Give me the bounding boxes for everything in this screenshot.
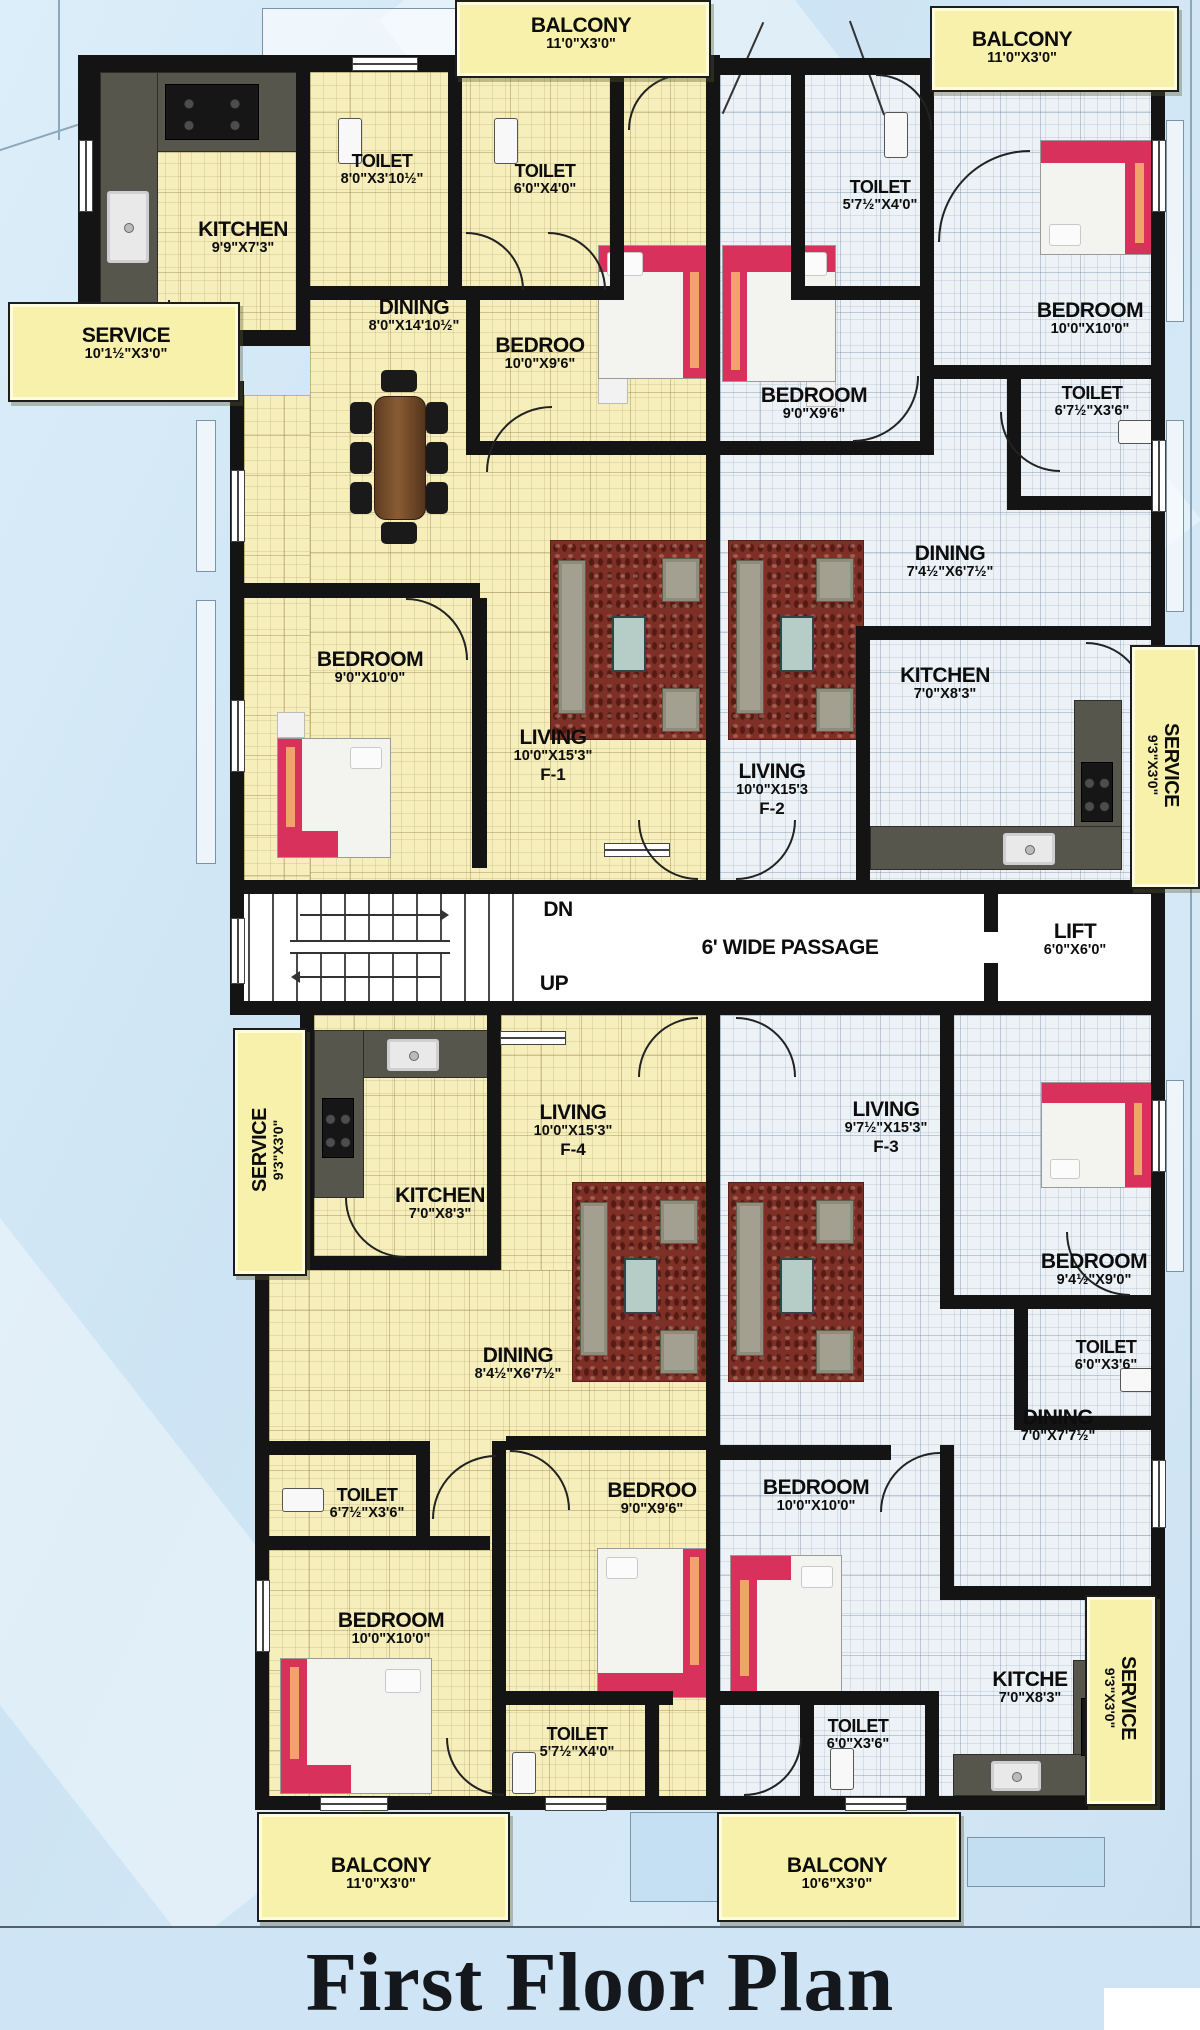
room-name: KITCHE — [930, 1668, 1130, 1691]
room-label-f3-living: LIVING 9'7½"X15'3" F-3 — [786, 1098, 986, 1157]
room-label-f2-living: LIVING 10'0"X15'3 F-2 — [672, 760, 872, 819]
room-dims: 7'4½"X6'7½" — [850, 565, 1050, 581]
room-label-f4-toilet-a: TOILET 6'7½"X3'6" — [267, 1486, 467, 1522]
stair-arrow-head — [291, 971, 300, 983]
room-name: BALCONY — [281, 1854, 481, 1877]
room-label-f3-toilet-a: TOILET 6'0"X3'6" — [1006, 1338, 1200, 1374]
wall — [706, 58, 720, 880]
window — [845, 1797, 907, 1811]
wall — [1007, 496, 1165, 510]
armchair-icon — [816, 558, 854, 602]
window-ledge — [1166, 420, 1184, 612]
room-dims: 5'7½"X4'0" — [780, 198, 980, 214]
armchair-icon — [816, 1330, 854, 1374]
room-dims: 6'7½"X3'6" — [267, 1506, 467, 1522]
room-name: TOILET — [992, 384, 1192, 404]
room-name: TOILET — [758, 1717, 958, 1737]
armchair-icon — [816, 1200, 854, 1244]
wall — [255, 1796, 1165, 1810]
room-dims: 7'0"X8'3" — [340, 1207, 540, 1223]
room-name: LIVING — [672, 760, 872, 783]
page-title: First Floor Plan — [0, 1934, 1200, 2030]
room-label-f3-bedroom-a: BEDROOM 9'4½"X9'0" — [994, 1250, 1194, 1289]
wall — [791, 286, 934, 300]
bed-f3-bedroom-b — [730, 1555, 842, 1692]
room-name: DINING — [314, 296, 514, 319]
room-dims: 6'7½"X3'6" — [992, 404, 1192, 420]
room-label-f1-service: SERVICE 10'1½"X3'0" — [26, 324, 226, 363]
flat-id: F-3 — [786, 1138, 986, 1157]
room-name: BEDROOM — [716, 1476, 916, 1499]
dining-table — [374, 396, 426, 520]
stair-down-label: DN — [528, 898, 588, 921]
kitchen-counter — [870, 826, 1122, 870]
room-name: BEDROOM — [714, 384, 914, 407]
window — [256, 1580, 270, 1652]
wall — [940, 1445, 954, 1600]
room-label-f4-service: SERVICE 9'3"X3'0" — [250, 1108, 286, 1192]
chair-icon — [350, 442, 372, 474]
room-name: BEDROO — [440, 334, 640, 357]
sink-icon — [386, 1038, 440, 1072]
room-label-f1-living: LIVING 10'0"X15'3" F-1 — [453, 726, 653, 785]
window-ledge — [1166, 1080, 1184, 1272]
wall — [706, 1445, 891, 1460]
chair-icon — [381, 522, 417, 544]
room-name: LIVING — [786, 1098, 986, 1121]
room-label-f1-kitchen: KITCHEN 9'9"X7'3" — [143, 218, 343, 257]
window-ledge — [196, 420, 216, 572]
room-name: DINING — [850, 542, 1050, 565]
room-name: BEDROOM — [990, 299, 1190, 322]
room-label-f2-bedroom-a: BEDROOM 9'0"X9'6" — [714, 384, 914, 423]
window-ledge — [1166, 120, 1184, 322]
room-label-f4-bedroom-a: BEDROOM 10'0"X10'0" — [291, 1609, 491, 1648]
window — [320, 1797, 388, 1811]
wall — [230, 395, 244, 880]
window — [352, 57, 418, 71]
room-dims: 9'4½"X9'0" — [994, 1273, 1194, 1289]
room-dims: 10'0"X10'0" — [990, 322, 1190, 338]
armchair-icon — [660, 1200, 698, 1244]
room-name: SERVICE — [1160, 723, 1181, 807]
sofa-icon — [580, 1202, 608, 1356]
wall — [506, 1436, 720, 1450]
coffee-table-icon — [780, 1258, 814, 1314]
wall — [720, 441, 934, 455]
chair-icon — [350, 402, 372, 434]
coffee-table-icon — [624, 1258, 658, 1314]
sofa-icon — [558, 560, 586, 714]
wall — [940, 1295, 1165, 1309]
room-name: BEDROOM — [994, 1250, 1194, 1273]
room-dims: 10'0"X15'3" — [453, 749, 653, 765]
room-name: LIVING — [453, 726, 653, 749]
chair-icon — [426, 402, 448, 434]
patio-outline — [630, 1812, 722, 1902]
room-name: BEDROOM — [270, 648, 470, 671]
room-label-f2-dining: DINING 7'4½"X6'7½" — [850, 542, 1050, 581]
window — [500, 1031, 566, 1045]
room-dims: 7'0"X7'7½" — [958, 1429, 1158, 1445]
wall — [230, 1001, 1165, 1015]
wall — [934, 365, 1165, 379]
room-name: TOILET — [267, 1486, 467, 1506]
wall — [984, 963, 998, 1001]
wall — [230, 880, 1165, 894]
sofa-icon — [736, 1202, 764, 1356]
room-label-f3-kitchen: KITCHE 7'0"X8'3" — [930, 1668, 1130, 1707]
wall — [856, 626, 1165, 640]
toilet-icon — [830, 1748, 854, 1790]
room-dims: 9'3"X3'0" — [1145, 723, 1160, 807]
toilet-icon — [494, 118, 518, 164]
window — [1152, 1100, 1166, 1172]
armchair-icon — [662, 558, 700, 602]
bed-f4-bedroom-a — [280, 1658, 432, 1794]
site-boundary-line — [1190, 0, 1192, 2030]
bed-f3-bedroom-a — [1041, 1082, 1152, 1188]
room-dims: 6'0"X3'6" — [758, 1737, 958, 1753]
room-label-f1-bedroom-a: BEDROO 10'0"X9'6" — [440, 334, 640, 373]
room-name: TOILET — [445, 162, 645, 182]
title-corner-chip — [1104, 1988, 1200, 2030]
room-dims: 8'0"X14'10½" — [314, 319, 514, 335]
room-label-balcony-top-right: BALCONY 11'0"X3'0" — [922, 28, 1122, 67]
room-dims: 10'0"X10'0" — [291, 1632, 491, 1648]
patio-outline — [967, 1837, 1105, 1887]
room-dims: 6'0"X6'0" — [975, 943, 1175, 959]
site-boundary-line — [58, 0, 60, 140]
room-name: SERVICE — [26, 324, 226, 347]
room-label-balcony-bottom-left: BALCONY 11'0"X3'0" — [281, 1854, 481, 1893]
room-dims: 11'0"X3'0" — [481, 37, 681, 53]
room-label-f2-service: SERVICE 9'3"X3'0" — [1145, 723, 1181, 807]
room-name: LIFT — [975, 920, 1175, 943]
room-label-balcony-top-left: BALCONY 11'0"X3'0" — [481, 14, 681, 53]
room-name: KITCHEN — [340, 1184, 540, 1207]
room-dims: 8'4½"X6'7½" — [418, 1367, 618, 1383]
room-label-balcony-bottom-right: BALCONY 10'6"X3'0" — [737, 1854, 937, 1893]
chair-icon — [350, 482, 372, 514]
room-name: TOILET — [1006, 1338, 1200, 1358]
room-label-f3-dining: DINING 7'0"X7'7½" — [958, 1406, 1158, 1445]
room-dims: 9'0"X9'6" — [714, 407, 914, 423]
room-label-f4-toilet-b: TOILET 5'7½"X4'0" — [477, 1725, 677, 1761]
window — [79, 140, 93, 212]
room-label-f2-toilet-a: TOILET 5'7½"X4'0" — [780, 178, 980, 214]
room-dims: 10'1½"X3'0" — [26, 347, 226, 363]
room-label-f2-kitchen: KITCHEN 7'0"X8'3" — [845, 664, 1045, 703]
room-label-f1-dining: DINING 8'0"X14'10½" — [314, 296, 514, 335]
room-label-f4-living: LIVING 10'0"X15'3" F-4 — [473, 1101, 673, 1160]
sink-icon — [1002, 832, 1056, 866]
room-label-f3-toilet-b: TOILET 6'0"X3'6" — [758, 1717, 958, 1753]
room-label-f2-bedroom-b: BEDROOM 10'0"X10'0" — [990, 299, 1190, 338]
nightstand — [598, 378, 628, 404]
flat-id: F-2 — [672, 800, 872, 819]
room-label-f3-bedroom-b: BEDROOM 10'0"X10'0" — [716, 1476, 916, 1515]
room-name: BALCONY — [737, 1854, 937, 1877]
room-name: BALCONY — [481, 14, 681, 37]
room-name: TOILET — [780, 178, 980, 198]
chair-icon — [381, 370, 417, 392]
stove-icon — [1081, 762, 1113, 822]
room-dims: 9'3"X3'0" — [271, 1108, 286, 1192]
room-label-f2-toilet-b: TOILET 6'7½"X3'6" — [992, 384, 1192, 420]
coffee-table-icon — [612, 616, 646, 672]
wall — [506, 1691, 673, 1705]
window — [545, 1797, 607, 1811]
armchair-icon — [660, 1330, 698, 1374]
chair-icon — [426, 442, 448, 474]
room-label-f4-dining: DINING 8'4½"X6'7½" — [418, 1344, 618, 1383]
room-name: DINING — [418, 1344, 618, 1367]
room-name: BALCONY — [922, 28, 1122, 51]
label-text: UP — [524, 972, 584, 995]
bed-f1-bedroom-b — [277, 738, 391, 858]
room-dims: 10'6"X3'0" — [737, 1877, 937, 1893]
room-name: KITCHEN — [143, 218, 343, 241]
room-dims: 10'0"X9'6" — [440, 357, 640, 373]
wall — [706, 1691, 939, 1705]
window — [1152, 140, 1166, 212]
room-dims: 9'7½"X15'3" — [786, 1121, 986, 1137]
room-name: LIVING — [473, 1101, 673, 1124]
room-name: KITCHEN — [845, 664, 1045, 687]
armchair-icon — [662, 688, 700, 732]
bed-f2-bedroom-b — [1040, 140, 1154, 255]
window — [1152, 440, 1166, 512]
room-dims: 10'0"X15'3 — [672, 783, 872, 799]
window — [231, 700, 245, 772]
room-name: SERVICE — [250, 1108, 271, 1192]
sink-icon — [990, 1760, 1042, 1792]
stair-arrow-head — [440, 909, 449, 921]
wall — [940, 1015, 954, 1309]
room-dims: 7'0"X8'3" — [930, 1691, 1130, 1707]
wall — [296, 55, 310, 346]
floor-plan-page: BALCONY 11'0"X3'0" BALCONY 11'0"X3'0" KI… — [0, 0, 1200, 2030]
room-dims: 11'0"X3'0" — [281, 1877, 481, 1893]
stair-up-label: UP — [524, 972, 584, 995]
room-dims: 5'7½"X4'0" — [477, 1745, 677, 1761]
wall — [255, 1536, 490, 1550]
nightstand — [277, 712, 305, 738]
window — [231, 918, 245, 984]
room-label-f1-toilet-b: TOILET 6'0"X4'0" — [445, 162, 645, 198]
label-text: 6' WIDE PASSAGE — [660, 936, 920, 959]
chair-icon — [426, 482, 448, 514]
room-label-f1-bedroom-b: BEDROOM 9'0"X10'0" — [270, 648, 470, 687]
room-dims: 10'0"X10'0" — [716, 1499, 916, 1515]
room-dims: 10'0"X15'3" — [473, 1124, 673, 1140]
stair-landing-rail — [290, 940, 450, 954]
wall — [255, 1441, 430, 1455]
sofa-icon — [736, 560, 764, 714]
window — [1152, 1460, 1166, 1528]
bed-f4-bedroom-b — [597, 1548, 708, 1698]
title-bar: First Floor Plan — [0, 1926, 1200, 2030]
window-ledge — [196, 600, 216, 864]
stove-icon — [165, 84, 259, 140]
room-dims: 7'0"X8'3" — [845, 687, 1045, 703]
window — [231, 470, 245, 542]
room-dims: 6'0"X4'0" — [445, 182, 645, 198]
lift-label: LIFT 6'0"X6'0" — [975, 920, 1175, 959]
stair-arrow-line — [300, 914, 440, 916]
room-name: BEDROOM — [291, 1609, 491, 1632]
label-text: DN — [528, 898, 588, 921]
room-dims: 11'0"X3'0" — [922, 51, 1122, 67]
bed-f2-bedroom-a — [722, 245, 836, 382]
flat-id: F-4 — [473, 1141, 673, 1160]
room-name: TOILET — [477, 1725, 677, 1745]
passage-label: 6' WIDE PASSAGE — [660, 936, 920, 959]
room-dims: 9'9"X7'3" — [143, 241, 343, 257]
room-label-f4-kitchen: KITCHEN 7'0"X8'3" — [340, 1184, 540, 1223]
room-dims: 6'0"X3'6" — [1006, 1358, 1200, 1374]
coffee-table-icon — [780, 616, 814, 672]
wall — [230, 583, 480, 598]
stair-arrow-line — [300, 976, 440, 978]
flat-id: F-1 — [453, 766, 653, 785]
stove-icon — [322, 1098, 354, 1158]
room-dims: 9'0"X10'0" — [270, 671, 470, 687]
room-name: DINING — [958, 1406, 1158, 1429]
